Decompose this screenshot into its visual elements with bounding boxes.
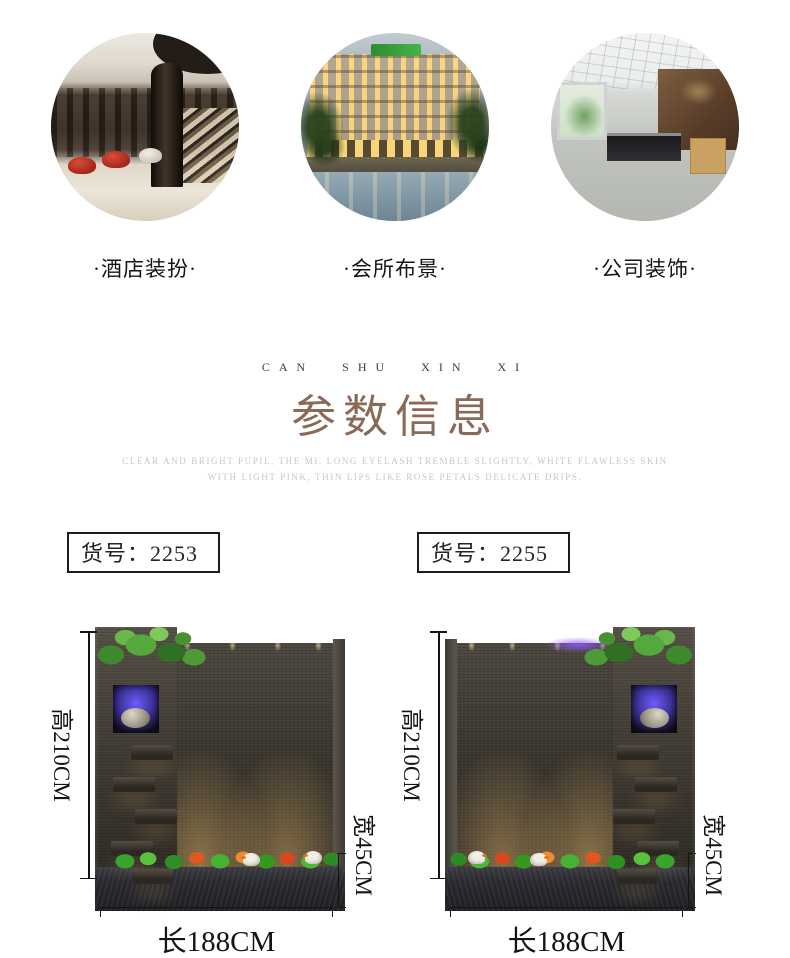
fountain-step-art	[613, 809, 655, 824]
product-figure: 高210CM 宽45CM 长188CM	[40, 579, 390, 958]
crane-figurine-art	[243, 853, 260, 866]
fountain-purple-led-art	[545, 637, 611, 653]
sku-box: 货号：2255	[417, 532, 570, 573]
lobby-red-chair-art	[102, 151, 130, 168]
fountain-top-plants-art	[87, 619, 207, 677]
height-dimension-line	[438, 631, 440, 879]
section-subtitle-line1: CLEAR AND BRIGHT PUPIL, THE MI, LONG EYE…	[0, 454, 790, 470]
palm-tree-art	[436, 74, 489, 172]
width-dimension-label: 宽45CM	[699, 814, 733, 896]
length-dimension: 长188CM	[100, 907, 333, 958]
office-window-art	[557, 82, 608, 140]
fountain-edge-pillar-art	[445, 639, 457, 867]
length-dimension-label: 长188CM	[450, 918, 683, 958]
palm-tree-art	[301, 78, 354, 176]
sku-box: 货号：2253	[67, 532, 220, 573]
fountain-led-niche-art	[113, 685, 159, 733]
club-resort-pool-photo	[301, 33, 489, 221]
product-detail-page: ·酒店装扮· ·会所布景· ·公司装饰·	[0, 0, 790, 958]
section-subtitle: CLEAR AND BRIGHT PUPIL, THE MI, LONG EYE…	[0, 454, 790, 486]
fountain-image-tower-right	[445, 599, 695, 911]
crane-figurine-art	[468, 851, 485, 864]
section-title: 参数信息	[0, 380, 790, 445]
width-dimension-label: 宽45CM	[349, 814, 383, 896]
parameter-section-header: CAN SHU XIN XI 参数信息 CLEAR AND BRIGHT PUP…	[0, 360, 790, 486]
height-dimension-label: 高210CM	[47, 708, 81, 801]
lobby-staircase-art	[183, 108, 239, 183]
scene-label-office: ·公司装饰·	[593, 253, 697, 283]
section-subtitle-line2: WITH LIGHT PINK, THIN LIPS LIKE ROSE PET…	[0, 470, 790, 486]
crane-figurine-art	[530, 853, 547, 866]
scene-club-column: ·会所布景·	[299, 33, 491, 283]
scene-hotel-column: ·酒店装扮·	[49, 33, 241, 283]
scene-label-club: ·会所布景·	[343, 253, 447, 283]
lobby-column-art	[151, 63, 183, 187]
fountain-led-niche-art	[631, 685, 677, 733]
fountain-step-art	[617, 745, 659, 760]
height-dimension-line	[88, 631, 90, 879]
office-reception-photo	[551, 33, 739, 221]
width-dimension-bracket	[688, 853, 696, 908]
fountain-step-art	[131, 745, 173, 760]
height-dimension-label: 高210CM	[397, 708, 431, 801]
product-2255: 货号：2255	[390, 532, 740, 958]
office-boxes-art	[690, 138, 726, 174]
scene-gallery: ·酒店装扮· ·会所布景· ·公司装饰·	[0, 33, 790, 283]
width-dimension-bracket	[338, 853, 346, 908]
hotel-lobby-photo	[51, 33, 239, 221]
crane-figurine-art	[305, 851, 322, 864]
fountain-edge-pillar-art	[333, 639, 345, 867]
length-dimension-label: 长188CM	[100, 918, 333, 958]
fountain-image-tower-left	[95, 599, 345, 911]
section-eyebrow: CAN SHU XIN XI	[0, 360, 790, 375]
fountain-step-art	[135, 809, 177, 824]
length-dimension: 长188CM	[450, 907, 683, 958]
lobby-red-chair-art	[68, 157, 96, 174]
product-2253: 货号：2253	[40, 532, 390, 958]
fountain-step-art	[635, 777, 677, 792]
resort-pool-art	[301, 172, 489, 221]
product-figure: 高210CM 宽45CM 长188CM	[390, 579, 740, 958]
office-plants-art	[602, 157, 688, 174]
length-dimension-line	[100, 907, 333, 917]
lobby-white-chair-art	[139, 148, 162, 163]
resort-sign-art	[371, 44, 422, 56]
product-comparison: 货号：2253	[40, 532, 750, 958]
scene-label-hotel: ·酒店装扮·	[93, 253, 197, 283]
length-dimension-line	[450, 907, 683, 917]
scene-office-column: ·公司装饰·	[549, 33, 741, 283]
fountain-step-art	[113, 777, 155, 792]
